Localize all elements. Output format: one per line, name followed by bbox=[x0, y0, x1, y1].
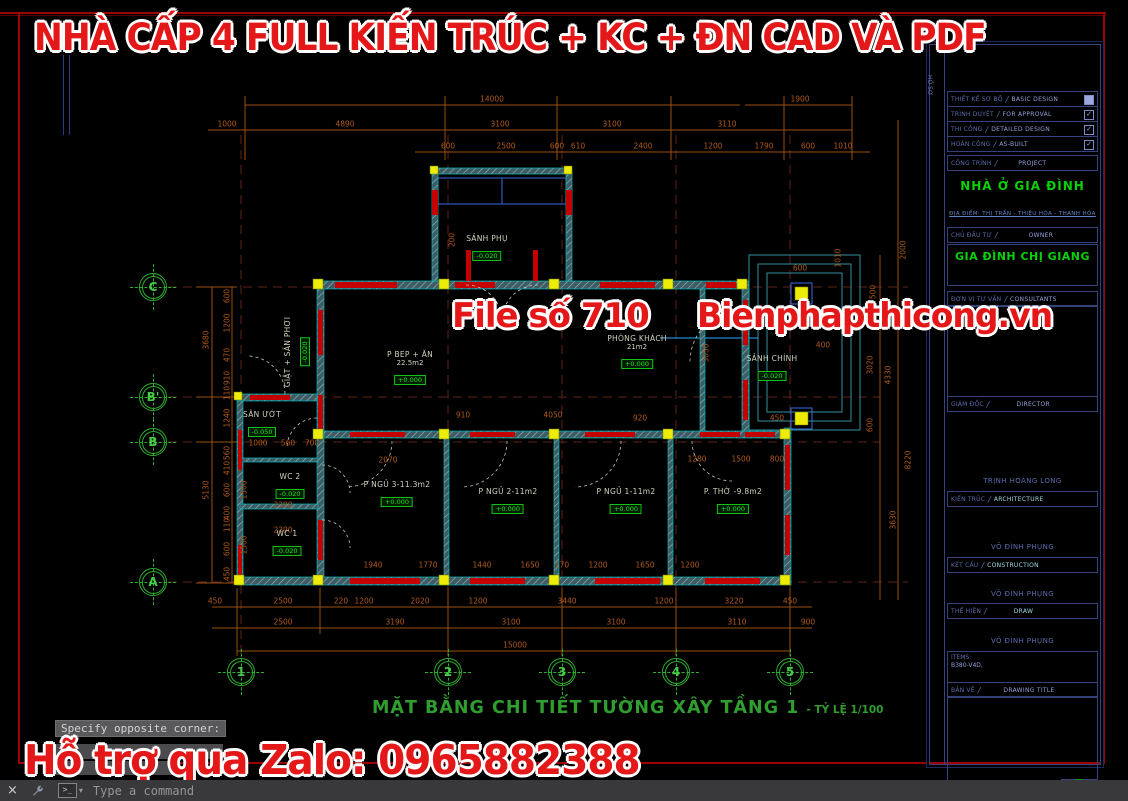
title-block-content: THIẾT KẾ SƠ BỘ/BASIC DESIGNTRÌNH DUYỆT/F… bbox=[945, 45, 1100, 764]
stage-row: THIẾT KẾ SƠ BỘ/BASIC DESIGN bbox=[947, 91, 1098, 107]
grid-bubble-label: 3 bbox=[558, 665, 566, 679]
sheet-label-vn: BẢN VẼ bbox=[951, 687, 975, 694]
grid-bubble-label: 4 bbox=[672, 665, 680, 679]
level-badge: +0.000 bbox=[610, 504, 642, 514]
title-block: HỒ SƠ THIẾT KẾ SƠ BỘ/BASIC DESIGNTRÌNH D… bbox=[929, 44, 1101, 765]
sheet-title-cell bbox=[947, 696, 1098, 781]
dim-label: 1000 bbox=[248, 439, 267, 448]
grid-bubble-label: A bbox=[148, 575, 157, 589]
dim-label: 2000 bbox=[899, 240, 908, 259]
sheet-label-en: DRAWING TITLE bbox=[1003, 687, 1054, 694]
dim-label: 410 bbox=[223, 461, 232, 475]
ad-banner-zalo: Hỗ trợ qua Zalo: 0965882388 bbox=[24, 736, 640, 784]
grid-bubble-label: 2 bbox=[444, 665, 452, 679]
dim-label: 5130 bbox=[202, 480, 211, 499]
grid-bubble-4: 4 bbox=[662, 658, 690, 686]
dim-label: 1200 bbox=[680, 561, 699, 570]
grid-bubble-2: 2 bbox=[434, 658, 462, 686]
room-name: SẢNH PHỤ bbox=[466, 234, 508, 243]
slash: / bbox=[995, 231, 998, 240]
dim-label: 110 bbox=[223, 386, 232, 400]
owner-label-vn: CHỦ ĐẦU TƯ bbox=[951, 232, 992, 239]
stage-label-vn: TRÌNH DUYỆT bbox=[951, 111, 994, 118]
dim-label: 3680 bbox=[202, 330, 211, 349]
dim-label: 400 bbox=[816, 341, 830, 350]
director-label-en: DIRECTOR bbox=[1016, 401, 1050, 408]
room-name: P NGỦ 3-11.3m2 bbox=[364, 480, 431, 489]
ad-banner-top: NHÀ CẤP 4 FULL KIẾN TRÚC + KC + ĐN CAD V… bbox=[34, 16, 986, 59]
grid-bubble-A: A bbox=[139, 568, 167, 596]
stage-checkbox[interactable]: ✓ bbox=[1084, 140, 1094, 150]
dim-label: 560 bbox=[223, 446, 232, 460]
architect-name: TRỊNH HOÀNG LONG bbox=[947, 477, 1098, 485]
director-header-row: GIÁM ĐỐC / DIRECTOR bbox=[947, 396, 1098, 412]
grid-bubble-B': B' bbox=[139, 383, 167, 411]
room-name: P NGỦ 1-11m2 bbox=[597, 487, 656, 496]
dim-label: 3110 bbox=[727, 618, 746, 627]
room-label: GIẶT + SÂN PHƠI-0.020 bbox=[283, 317, 311, 388]
room-name: SÂN ƯỚT bbox=[243, 410, 281, 419]
room-label: SÂN ƯỚT-0.050 bbox=[243, 410, 281, 438]
dim-label: 2500 bbox=[273, 597, 292, 606]
grid-bubble-C: C bbox=[139, 273, 167, 301]
dim-label: 3630 bbox=[889, 510, 898, 529]
room-name: P. THỜ -9.8m2 bbox=[704, 487, 762, 496]
command-prompt-icon[interactable]: >_ bbox=[58, 783, 77, 798]
draw-row: THỂ HIỆN / DRAW bbox=[947, 603, 1098, 619]
dim-label: 2400 bbox=[633, 142, 652, 151]
command-input[interactable]: Type a command bbox=[93, 784, 194, 798]
level-badge: -0.050 bbox=[248, 427, 277, 437]
director-label-vn: GIÁM ĐỐC bbox=[951, 401, 984, 408]
dim-label: 3190 bbox=[385, 618, 404, 627]
dim-label: 1200 bbox=[468, 597, 487, 606]
dim-label: 170 bbox=[555, 561, 569, 570]
dim-label: 610 bbox=[571, 142, 585, 151]
dim-label: 2500 bbox=[496, 142, 515, 151]
slash: / bbox=[995, 159, 998, 168]
drawing-title: MẶT BẰNG CHI TIẾT TƯỜNG XÂY TẦNG 1 - TỶ … bbox=[372, 698, 883, 718]
project-address: ĐỊA ĐIỂM: THỊ TRẤN - THIỆU HÓA - THANH H… bbox=[947, 211, 1098, 217]
level-badge: -0.020 bbox=[300, 338, 310, 367]
stage-checkbox[interactable]: ✓ bbox=[1084, 125, 1094, 135]
room-label: P. THỜ -9.8m2+0.000 bbox=[704, 487, 762, 515]
dim-label: 600 bbox=[223, 289, 232, 303]
dim-label: 910 bbox=[223, 371, 232, 385]
dim-label: 2070 bbox=[378, 456, 397, 465]
project-label-vn: CÔNG TRÌNH bbox=[951, 160, 992, 167]
slash: / bbox=[986, 125, 989, 134]
project-name: NHÀ Ở GIA ĐÌNH bbox=[947, 179, 1098, 193]
room-label: SẢNH CHÍNH-0.020 bbox=[747, 354, 798, 382]
grid-bubble-3: 3 bbox=[548, 658, 576, 686]
dim-label: 600 bbox=[441, 142, 455, 151]
room-label: P NGỦ 2-11m2+0.000 bbox=[479, 487, 538, 515]
items-label: ITEMS: bbox=[951, 654, 1097, 661]
structure-label-vn: KẾT CẤU bbox=[951, 562, 978, 569]
structure-label-en: CONSTRUCTION bbox=[987, 562, 1039, 569]
dim-label: 800 bbox=[770, 455, 784, 464]
stage-label-vn: THI CÔNG bbox=[951, 126, 983, 133]
dim-label: 3050 bbox=[702, 343, 711, 362]
stage-label-vn: THIẾT KẾ SƠ BỘ bbox=[951, 96, 1003, 103]
slash: / bbox=[997, 110, 1000, 119]
side-strip-label: HỒ SƠ bbox=[926, 75, 933, 95]
dim-label: 1010 bbox=[834, 248, 843, 267]
dim-label: 1650 bbox=[635, 561, 654, 570]
level-badge: -0.020 bbox=[273, 546, 302, 556]
drawing-title-text: MẶT BẰNG CHI TIẾT TƯỜNG XÂY TẦNG 1 bbox=[372, 698, 799, 718]
level-badge: -0.020 bbox=[276, 489, 305, 499]
dim-label: 4050 bbox=[543, 411, 562, 420]
dim-label: 1440 bbox=[472, 561, 491, 570]
title-block-side-strip: HỒ SƠ bbox=[930, 45, 945, 764]
stage-row: THI CÔNG/DETAILED DESIGN✓ bbox=[947, 121, 1098, 137]
dim-label: 450 bbox=[208, 597, 222, 606]
dim-label: 600 bbox=[866, 418, 875, 432]
grid-bubble-1: 1 bbox=[227, 658, 255, 686]
items-cell: ITEMS: B380-V4D, bbox=[947, 651, 1098, 683]
room-name: PHÒNG KHÁCH bbox=[607, 334, 667, 343]
draw-label-en: DRAW bbox=[1014, 608, 1033, 615]
room-name: WC 2 bbox=[276, 472, 305, 481]
slash: / bbox=[981, 561, 984, 570]
dim-label: 3110 bbox=[717, 120, 736, 129]
dim-label: 2390 bbox=[273, 501, 292, 510]
room-area: 22.5m2 bbox=[387, 359, 433, 367]
dim-label: 220 bbox=[334, 597, 348, 606]
cursor-tooltip: Specify opposite corner: bbox=[55, 720, 226, 737]
slash: / bbox=[988, 495, 991, 504]
dim-label: 600 bbox=[793, 264, 807, 273]
room-label: WC 1-0.020 bbox=[273, 529, 302, 557]
level-badge: +0.000 bbox=[621, 359, 653, 369]
stage-checkbox[interactable] bbox=[1084, 95, 1094, 105]
stage-label-en: BASIC DESIGN bbox=[1011, 96, 1058, 103]
dim-label: 600 bbox=[223, 542, 232, 556]
dim-label: 560 bbox=[281, 439, 295, 448]
command-bar: × >_ ▾ Type a command bbox=[0, 780, 1128, 801]
dim-label: 1650 bbox=[520, 561, 539, 570]
grid-bubble-5: 5 bbox=[776, 658, 804, 686]
stage-checkbox[interactable]: ✓ bbox=[1084, 110, 1094, 120]
dim-label: 450 bbox=[223, 567, 232, 581]
dim-label: 3100 bbox=[606, 618, 625, 627]
stage-label-en: FOR APPROVAL bbox=[1003, 111, 1052, 118]
dim-label: 910 bbox=[456, 411, 470, 420]
dim-label: 1280 bbox=[687, 455, 706, 464]
dim-label: 600 bbox=[223, 483, 232, 497]
dim-label: 1200 bbox=[354, 597, 373, 606]
structure-row: KẾT CẤU / CONSTRUCTION bbox=[947, 557, 1098, 573]
dim-label: 3100 bbox=[501, 618, 520, 627]
structure-name: VÕ ĐÌNH PHỤNG bbox=[947, 543, 1098, 551]
items-value: B380-V4D, bbox=[951, 662, 1097, 669]
owner-name-cell bbox=[947, 244, 1098, 286]
wrench-icon[interactable] bbox=[30, 784, 44, 798]
level-badge: +0.000 bbox=[381, 497, 413, 507]
ad-banner-file-number: File số 710 bbox=[452, 296, 649, 336]
dim-label: 1900 bbox=[790, 95, 809, 104]
room-name: P NGỦ 2-11m2 bbox=[479, 487, 538, 496]
dim-label: 1010 bbox=[833, 142, 852, 151]
dim-label: 1200 bbox=[588, 561, 607, 570]
dim-label: 470 bbox=[223, 348, 232, 362]
stage-label-en: AS-BUILT bbox=[999, 141, 1028, 148]
level-badge: +0.000 bbox=[717, 504, 749, 514]
dim-label: 1790 bbox=[754, 142, 773, 151]
dim-label: 8220 bbox=[904, 450, 913, 469]
dim-label: 3440 bbox=[557, 597, 576, 606]
room-name: WC 1 bbox=[273, 529, 302, 538]
grid-bubble-label: C bbox=[149, 280, 158, 294]
grid-bubble-label: B' bbox=[147, 390, 160, 404]
dim-label: 1200 bbox=[703, 142, 722, 151]
grid-bubble-B: B bbox=[139, 428, 167, 456]
level-badge: +0.000 bbox=[394, 375, 426, 385]
dim-label: 450 bbox=[770, 414, 784, 423]
dim-label: 900 bbox=[801, 618, 815, 627]
dim-label: 450 bbox=[783, 597, 797, 606]
close-icon[interactable]: × bbox=[7, 783, 18, 798]
check-name: VÕ ĐÌNH PHỤNG bbox=[947, 637, 1098, 645]
dim-label: 920 bbox=[633, 414, 647, 423]
project-label-en: PROJECT bbox=[1018, 160, 1046, 167]
owner-header-row: CHỦ ĐẦU TƯ / OWNER bbox=[947, 227, 1098, 243]
owner-label-en: OWNER bbox=[1029, 232, 1054, 239]
room-label: WC 2-0.020 bbox=[276, 472, 305, 500]
dim-label: 1940 bbox=[363, 561, 382, 570]
dim-label: 700 bbox=[305, 439, 319, 448]
architecture-row: KIẾN TRÚC / ARCHITECTURE bbox=[947, 491, 1098, 507]
dim-label: 1500 bbox=[731, 455, 750, 464]
room-label: PHÒNG KHÁCH21m2+0.000 bbox=[607, 334, 667, 370]
stage-label-en: DETAILED DESIGN bbox=[991, 126, 1050, 133]
dim-label: 14000 bbox=[480, 95, 504, 104]
room-label: P NGỦ 3-11.3m2+0.000 bbox=[364, 480, 431, 508]
room-area: 21m2 bbox=[607, 343, 667, 351]
room-name: SẢNH CHÍNH bbox=[747, 354, 798, 363]
grid-bubble-label: 5 bbox=[786, 665, 794, 679]
dim-label: 1240 bbox=[223, 408, 232, 427]
dim-label: 1500 bbox=[240, 535, 249, 554]
slash: / bbox=[1006, 95, 1009, 104]
dim-label: 1500 bbox=[240, 480, 249, 499]
stage-label-vn: HOÀN CÔNG bbox=[951, 141, 990, 148]
architecture-label-vn: KIẾN TRÚC bbox=[951, 496, 985, 503]
dim-label: 2500 bbox=[273, 618, 292, 627]
project-header-row: CÔNG TRÌNH / PROJECT bbox=[947, 155, 1098, 171]
stage-row: HOÀN CÔNG/AS-BUILT✓ bbox=[947, 136, 1098, 152]
slash: / bbox=[993, 140, 996, 149]
slash: / bbox=[984, 607, 987, 616]
dim-label: 3100 bbox=[490, 120, 509, 129]
dim-label: 1200 bbox=[223, 313, 232, 332]
slash: / bbox=[978, 686, 981, 695]
slash: / bbox=[987, 400, 990, 409]
draw-label-vn: THỂ HIỆN bbox=[951, 608, 981, 615]
dim-label: 600 bbox=[801, 142, 815, 151]
room-name: P BEP + ĂN bbox=[387, 350, 433, 359]
dim-label: 3020 bbox=[866, 355, 875, 374]
dim-label: 3220 bbox=[724, 597, 743, 606]
dim-label: 1200 bbox=[654, 597, 673, 606]
dim-label: 3100 bbox=[602, 120, 621, 129]
dim-label: 4330 bbox=[884, 365, 893, 384]
dim-label: 110 bbox=[223, 518, 232, 532]
ad-banner-website: Bienphapthicong.vn bbox=[697, 296, 1052, 336]
level-badge: +0.000 bbox=[492, 504, 524, 514]
draw-name: VÕ ĐÌNH PHỤNG bbox=[947, 590, 1098, 598]
dim-label: 4890 bbox=[335, 120, 354, 129]
grid-bubble-label: 1 bbox=[237, 665, 245, 679]
chevron-down-icon[interactable]: ▾ bbox=[79, 786, 83, 795]
room-label: P BEP + ĂN22.5m2+0.000 bbox=[387, 350, 433, 386]
room-label: P NGỦ 1-11m2+0.000 bbox=[597, 487, 656, 515]
dim-label: 2020 bbox=[410, 597, 429, 606]
room-name: GIẶT + SÂN PHƠI bbox=[283, 317, 292, 388]
dim-label: 600 bbox=[550, 142, 564, 151]
architecture-label-en: ARCHITECTURE bbox=[994, 496, 1044, 503]
level-badge: -0.020 bbox=[758, 371, 787, 381]
room-label: SẢNH PHỤ-0.020 bbox=[466, 234, 508, 262]
drawing-scale-text: - TỶ LỆ 1/100 bbox=[806, 704, 883, 716]
grid-bubble-label: B bbox=[148, 435, 157, 449]
dim-label: 1000 bbox=[217, 120, 236, 129]
stage-row: TRÌNH DUYỆT/FOR APPROVAL✓ bbox=[947, 106, 1098, 122]
level-badge: -0.020 bbox=[473, 251, 502, 261]
dim-label: 200 bbox=[448, 233, 457, 247]
dim-label: 15000 bbox=[503, 641, 527, 650]
dim-label: 1770 bbox=[418, 561, 437, 570]
